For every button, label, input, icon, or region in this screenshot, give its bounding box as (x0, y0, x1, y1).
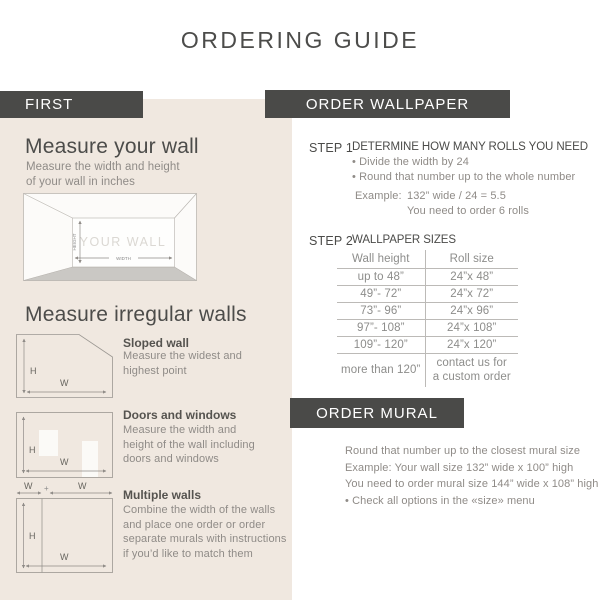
roll-size-cell: 24”x 108” (425, 319, 518, 336)
step1-bullet: • Round that number up to the whole numb… (352, 171, 575, 183)
sloped-height-label: H (30, 366, 37, 376)
mural-line: Round that number up to the closest mura… (345, 443, 598, 460)
table-row: 73”- 96” 24”x 96” (337, 302, 518, 319)
page-title: ORDERING GUIDE (0, 27, 600, 54)
step1-example-label: Example: (355, 190, 402, 202)
step1-label: STEP 1 (309, 141, 353, 155)
doors-windows-label: Doors and windows (123, 408, 236, 422)
wallpaper-sizes-table: Wall height Roll size up to 48” 24”x 48”… (337, 250, 518, 387)
irregular-walls-heading: Measure irregular walls (25, 303, 247, 327)
column-header-roll-size: Roll size (425, 250, 518, 268)
order-mural-instructions: Round that number up to the closest mura… (345, 443, 598, 509)
step2-label: STEP 2 (309, 234, 353, 248)
table-row: 109”- 120” 24”x 120” (337, 336, 518, 353)
roll-size-cell: 24”x 120” (425, 336, 518, 353)
step2-title: WALLPAPER SIZES (352, 234, 456, 246)
doors-width-label: W (60, 457, 69, 467)
wall-height-cell: up to 48” (337, 268, 425, 285)
mural-line: • Check all options in the «size» menu (345, 493, 598, 510)
table-row: more than 120” contact us for a custom o… (337, 353, 518, 387)
multi-top-width-label-2: W (78, 482, 87, 491)
multi-plus-label: + (44, 484, 49, 493)
table-row: 97”- 108” 24”x 108” (337, 319, 518, 336)
width-label: WIDTH (116, 256, 131, 261)
doors-windows-diagram: H W (16, 412, 113, 478)
first-section-header: FIRST (0, 91, 143, 118)
sloped-width-label: W (60, 378, 69, 388)
your-wall-label: YOUR WALL (80, 235, 167, 249)
sloped-wall-diagram: H W (16, 334, 113, 398)
roll-size-cell: 24”x 96” (425, 302, 518, 319)
window-shape (39, 430, 58, 456)
table-row: 49”- 72” 24”x 72” (337, 285, 518, 302)
doors-windows-description: Measure the width and height of the wall… (123, 423, 255, 467)
step1-example-result: You need to order 6 rolls (407, 205, 529, 217)
step1-title: DETERMINE HOW MANY ROLLS YOU NEED (352, 141, 588, 153)
sloped-wall-label: Sloped wall (123, 336, 189, 350)
multiple-walls-label: Multiple walls (123, 488, 201, 502)
measure-wall-subtext: Measure the width and height of your wal… (26, 160, 180, 190)
mural-line: You need to order mural size 144” wide x… (345, 476, 598, 493)
table-row: up to 48” 24”x 48” (337, 268, 518, 285)
multiple-walls-description: Combine the width of the walls and place… (123, 503, 286, 561)
roll-size-cell: 24”x 48” (425, 268, 518, 285)
multi-top-width-label-1: W (24, 482, 33, 491)
sloped-wall-description: Measure the widest and highest point (123, 349, 242, 378)
door-shape (82, 441, 98, 477)
step1-example-calc: 132” wide / 24 = 5.5 (407, 190, 506, 202)
wall-height-cell: more than 120” (337, 353, 425, 387)
multi-width-label: W (60, 552, 69, 562)
multi-height-label: H (29, 531, 36, 541)
wall-height-cell: 109”- 120” (337, 336, 425, 353)
column-header-wall-height: Wall height (337, 250, 425, 268)
doors-height-label: H (29, 445, 36, 455)
roll-size-cell: 24”x 72” (425, 285, 518, 302)
order-wallpaper-header: ORDER WALLPAPER (265, 90, 510, 118)
height-label: HEIGHT (72, 233, 77, 250)
order-mural-header: ORDER MURAL (290, 398, 464, 428)
wall-height-cell: 73”- 96” (337, 302, 425, 319)
measure-wall-heading: Measure your wall (25, 135, 199, 159)
wall-measurement-diagram: YOUR WALL HEIGHT WIDTH (23, 193, 197, 281)
multiple-walls-diagram: W + W H W (16, 482, 113, 573)
mural-line: Example: Your wall size 132” wide x 100”… (345, 460, 598, 477)
table-header-row: Wall height Roll size (337, 250, 518, 268)
wall-height-cell: 49”- 72” (337, 285, 425, 302)
roll-size-cell: contact us for a custom order (425, 353, 518, 387)
wall-height-cell: 97”- 108” (337, 319, 425, 336)
step1-bullet: • Divide the width by 24 (352, 156, 469, 168)
